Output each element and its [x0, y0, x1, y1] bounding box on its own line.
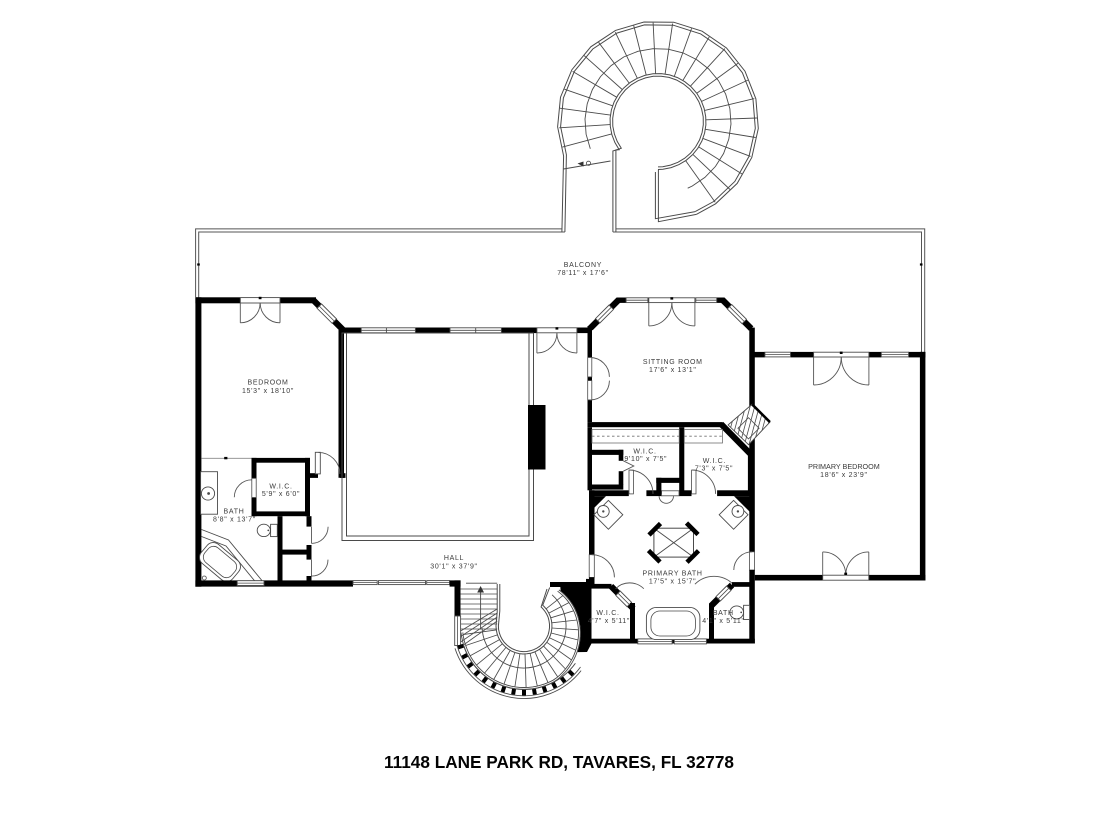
svg-text:PRIMARY BATH: PRIMARY BATH: [643, 571, 703, 578]
svg-text:4'7" x 5'11": 4'7" x 5'11": [588, 618, 630, 625]
svg-text:5'9" x 6'0": 5'9" x 6'0": [262, 491, 300, 498]
svg-text:W.I.C.: W.I.C.: [633, 448, 656, 455]
svg-text:W.I.C.: W.I.C.: [596, 610, 619, 617]
svg-text:4'1" x 5'11": 4'1" x 5'11": [702, 618, 744, 625]
svg-text:SITTING ROOM: SITTING ROOM: [643, 359, 703, 366]
svg-text:7'3" x 7'5": 7'3" x 7'5": [695, 465, 733, 472]
svg-text:30'1" x 37'9": 30'1" x 37'9": [430, 563, 478, 570]
svg-text:BATH: BATH: [713, 610, 734, 617]
svg-text:W.I.C.: W.I.C.: [269, 484, 292, 491]
svg-text:PRIMARY BEDROOM: PRIMARY BEDROOM: [808, 462, 880, 471]
svg-text:17'6" x 13'1": 17'6" x 13'1": [649, 367, 697, 374]
svg-text:78'11" x 17'6": 78'11" x 17'6": [557, 270, 609, 277]
svg-text:BATH: BATH: [224, 508, 245, 515]
svg-text:BEDROOM: BEDROOM: [247, 380, 288, 387]
svg-text:9'10" x 7'5": 9'10" x 7'5": [624, 456, 667, 463]
svg-text:BALCONY: BALCONY: [564, 262, 602, 269]
svg-text:18'6" x 23'9": 18'6" x 23'9": [820, 472, 868, 479]
svg-text:HALL: HALL: [444, 555, 464, 562]
svg-text:15'3" x 18'10": 15'3" x 18'10": [242, 388, 294, 395]
svg-text:W.I.C.: W.I.C.: [703, 458, 726, 465]
svg-text:8'8" x 13'7": 8'8" x 13'7": [213, 516, 256, 523]
svg-text:17'5" x 15'7": 17'5" x 15'7": [649, 579, 697, 586]
